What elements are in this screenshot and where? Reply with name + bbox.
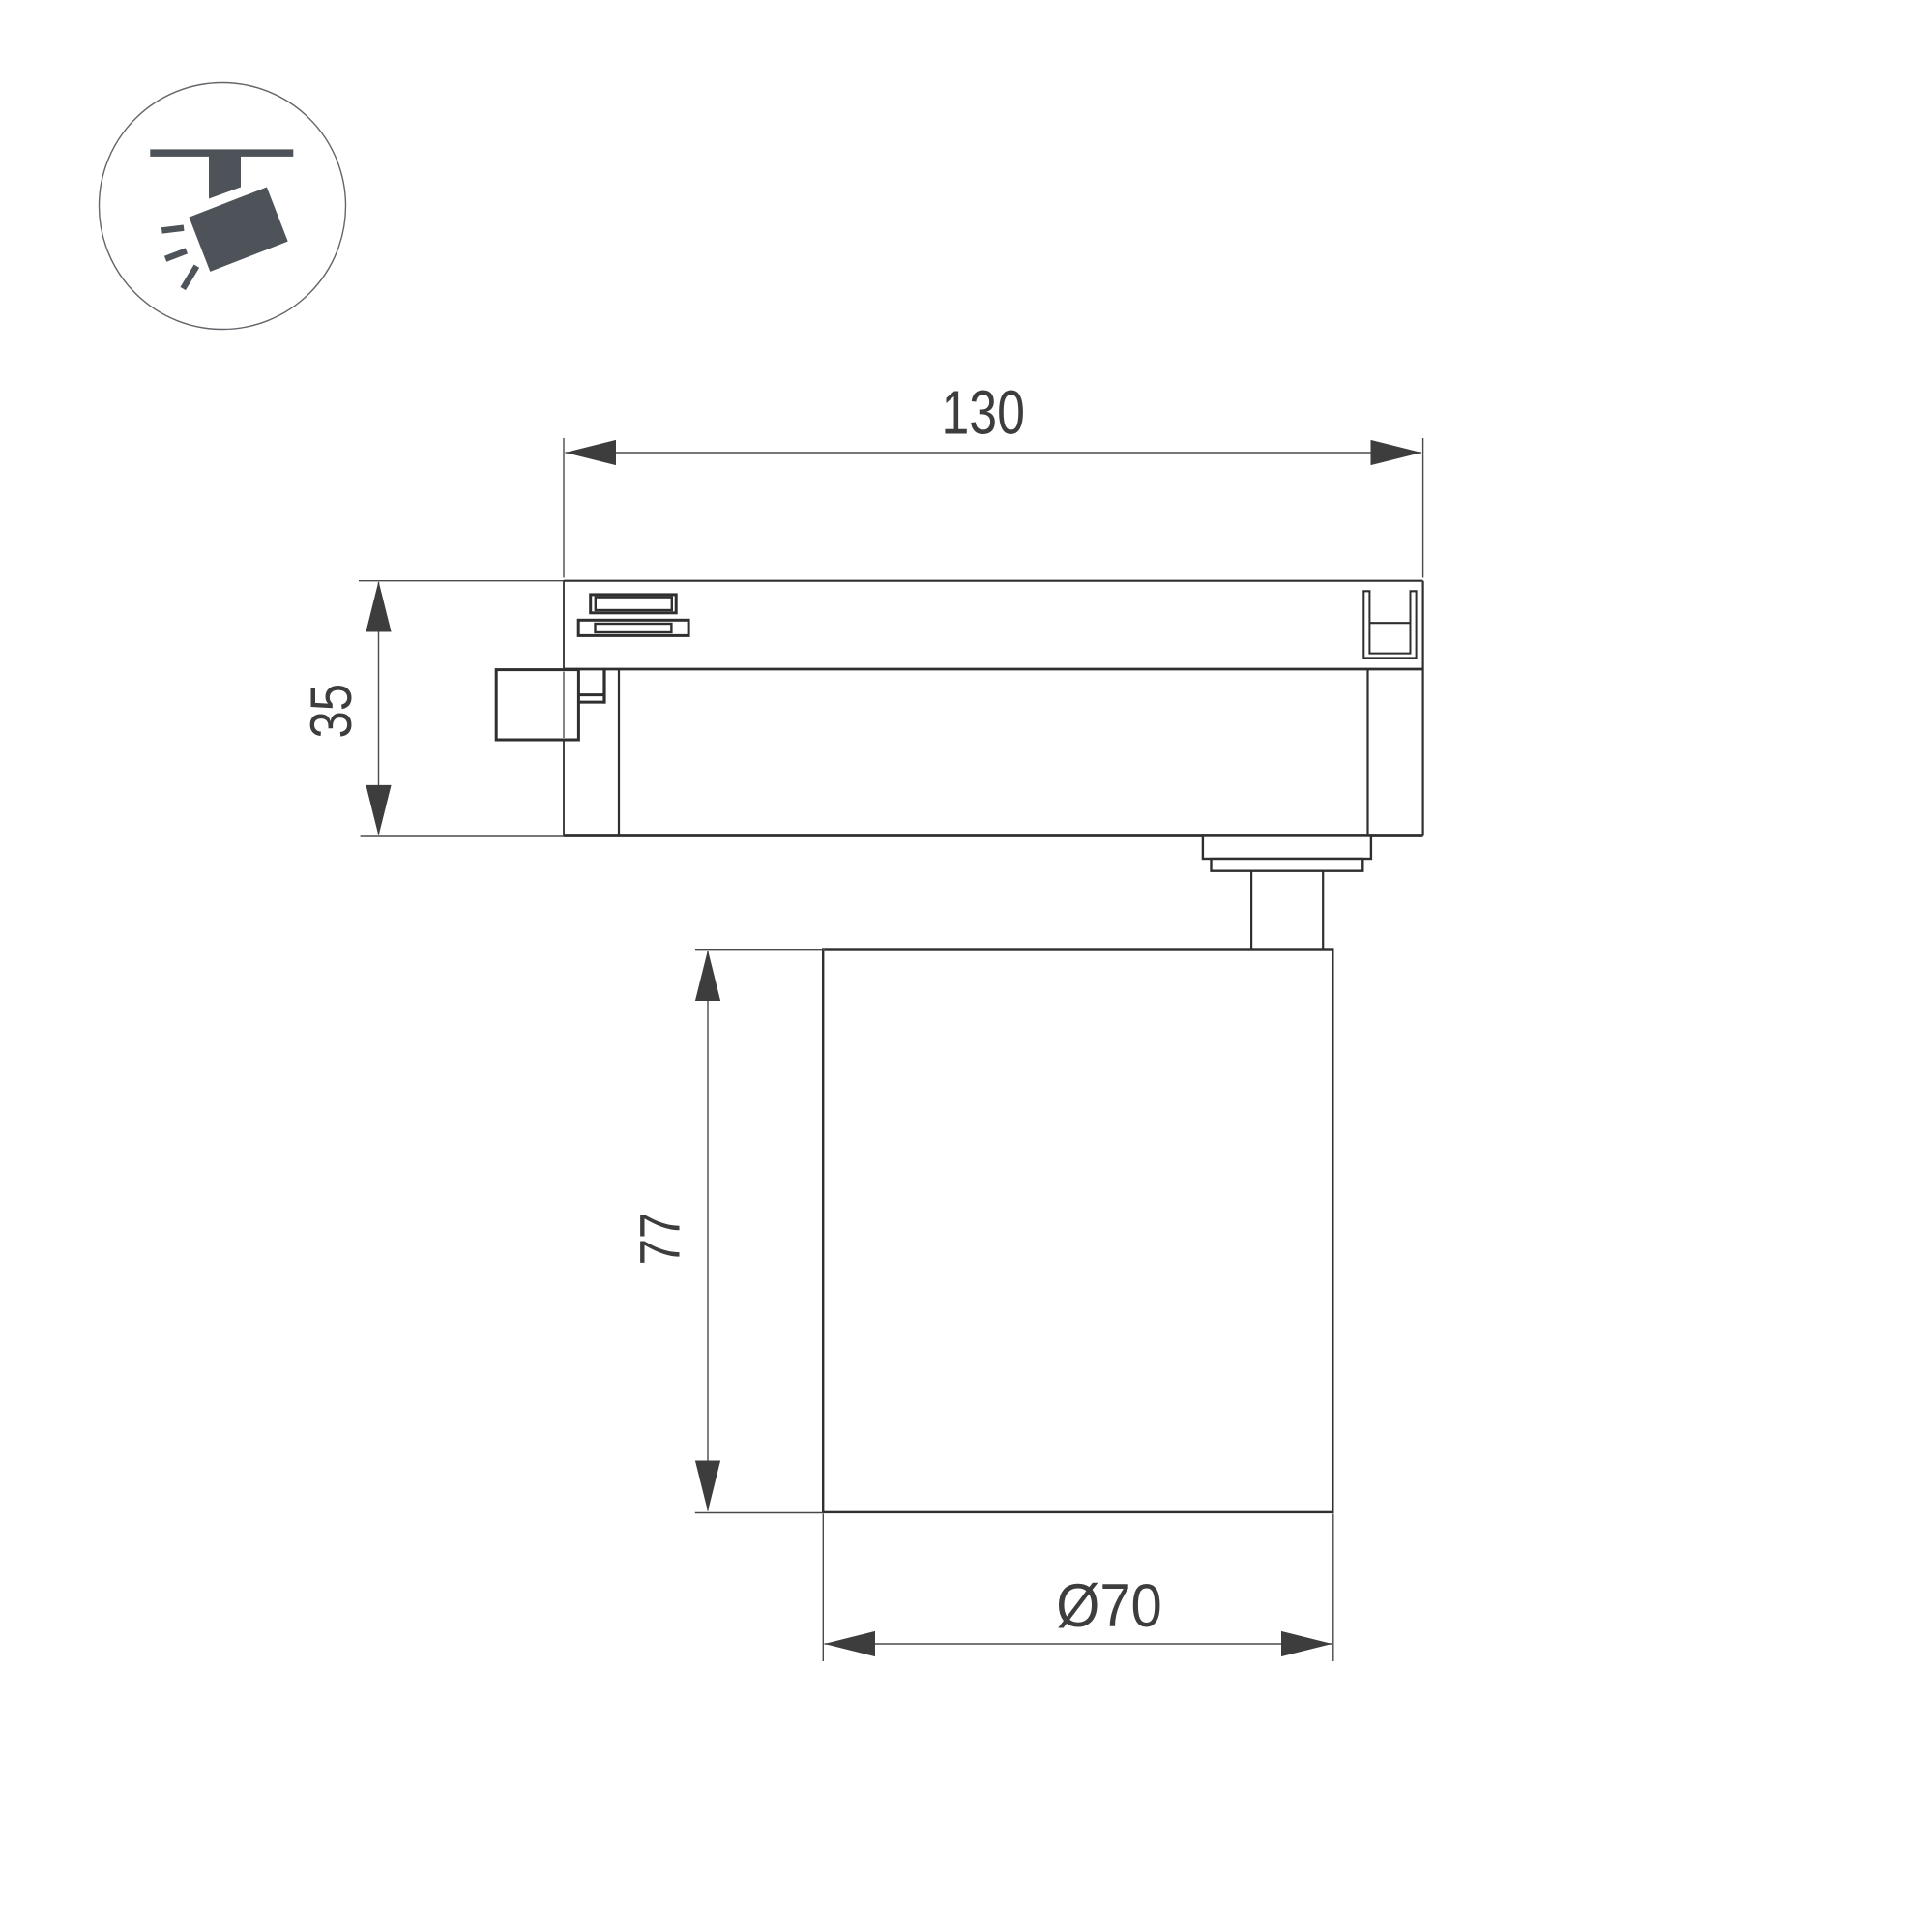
svg-text:Ø70: Ø70 xyxy=(1056,1571,1162,1640)
svg-text:35: 35 xyxy=(299,684,364,739)
svg-text:77: 77 xyxy=(629,1213,692,1266)
svg-text:130: 130 xyxy=(941,378,1024,447)
